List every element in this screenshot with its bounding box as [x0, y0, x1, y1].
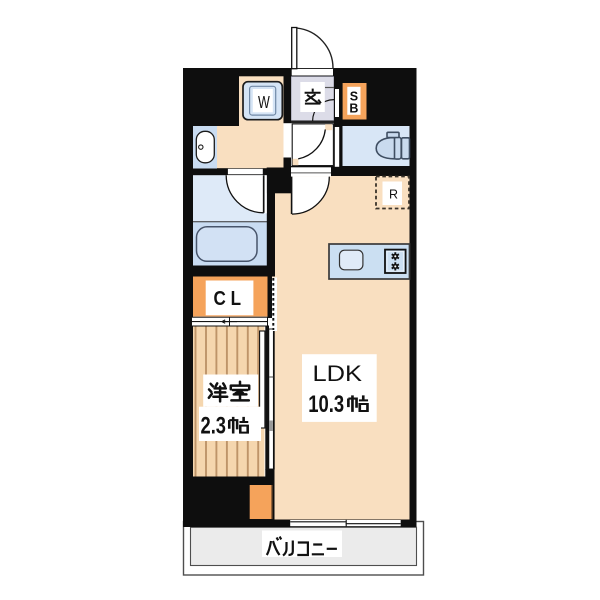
svg-text:10.3: 10.3 [308, 391, 344, 418]
svg-text:2.3: 2.3 [201, 413, 227, 440]
svg-text:C L: C L [214, 288, 242, 310]
svg-text:W: W [258, 92, 270, 112]
svg-text:LDK: LDK [313, 361, 363, 386]
svg-text:R: R [389, 188, 398, 202]
svg-text:B: B [349, 102, 358, 116]
